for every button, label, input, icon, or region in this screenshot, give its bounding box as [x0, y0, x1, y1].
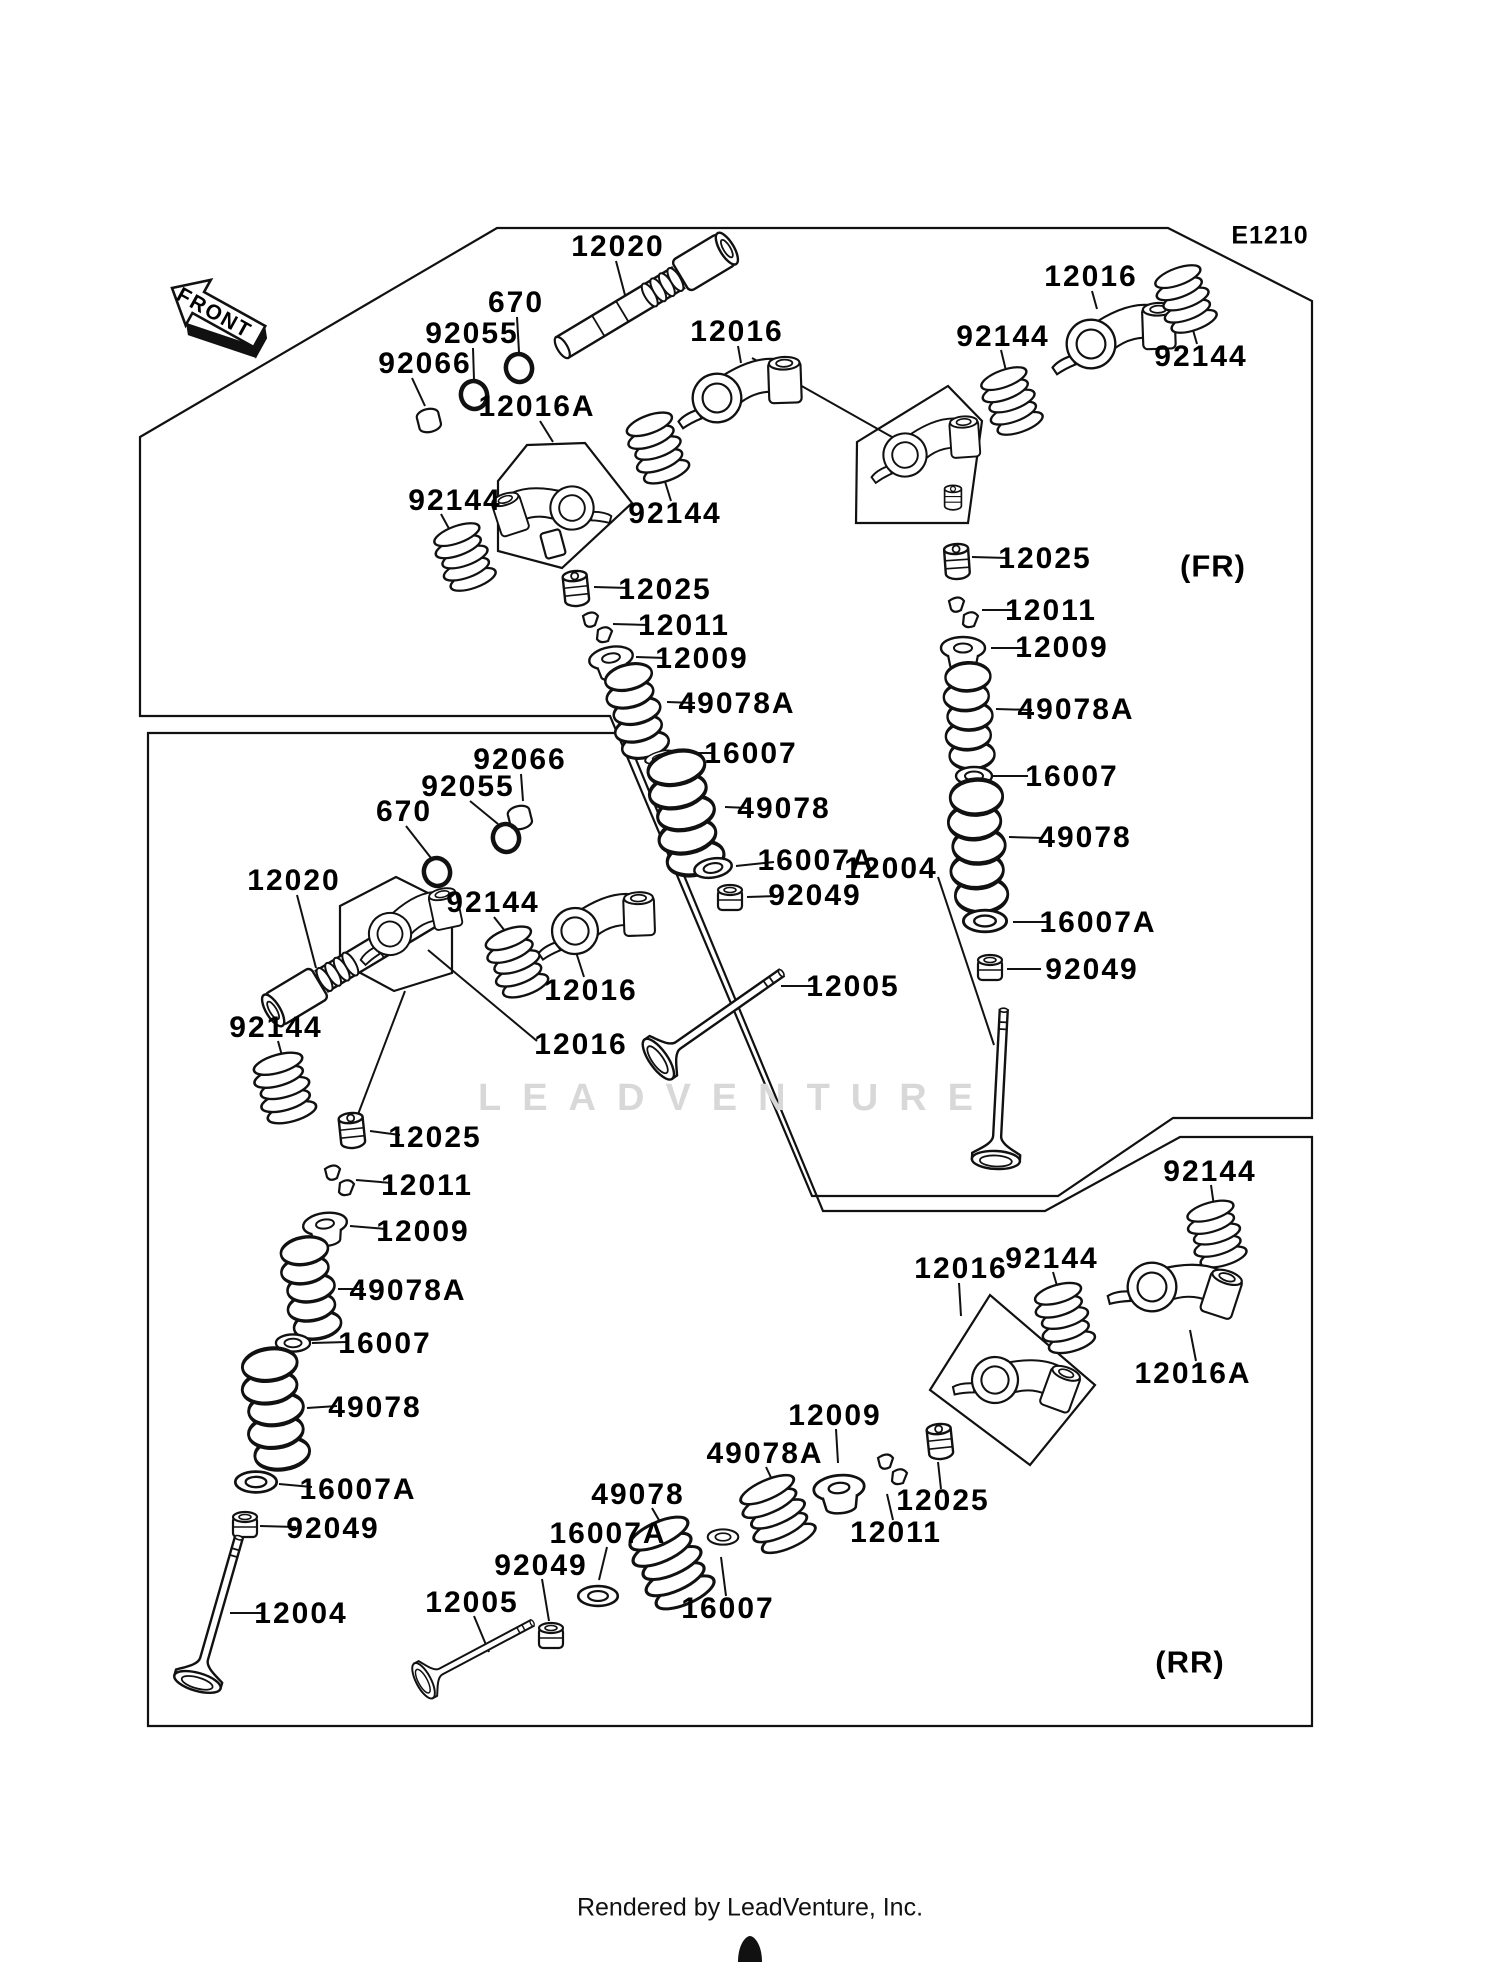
part-label[interactable]: 92144 [1005, 1244, 1098, 1274]
parts-diagram-page: FRONT LEADVENTURE E1210 (FR) (RR) 12020 … [0, 0, 1500, 1962]
part-label[interactable]: 12020 [247, 866, 340, 896]
parts-diagram-canvas: FRONT [0, 0, 1500, 1962]
part-label[interactable]: 92144 [1154, 342, 1247, 372]
part-label[interactable]: 16007A [299, 1475, 416, 1505]
part-label[interactable]: 12011 [850, 1518, 942, 1548]
part-label[interactable]: 16007A [1039, 908, 1156, 938]
part-label[interactable]: 12016 [1044, 262, 1137, 292]
part-label[interactable]: 12011 [381, 1171, 473, 1201]
front-arrow: FRONT [156, 265, 278, 368]
part-label[interactable]: 12011 [638, 611, 730, 641]
part-label[interactable]: 49078 [1038, 823, 1131, 853]
part-label[interactable]: 12004 [254, 1599, 347, 1629]
part-label[interactable]: 12016 [534, 1030, 627, 1060]
part-label[interactable]: 16007 [704, 739, 797, 769]
part-label[interactable]: 12005 [425, 1588, 518, 1618]
part-label[interactable]: 16007 [681, 1594, 774, 1624]
diagram-code: E1210 [1231, 224, 1308, 249]
part-label[interactable]: 49078 [737, 794, 830, 824]
part-label[interactable]: 92144 [1163, 1157, 1256, 1187]
part-label[interactable]: 12025 [388, 1123, 481, 1153]
part-label[interactable]: 92144 [956, 322, 1049, 352]
part-label[interactable]: 16007A [549, 1519, 666, 1549]
part-label[interactable]: 12016A [478, 392, 595, 422]
part-label[interactable]: 670 [488, 288, 544, 318]
part-label[interactable]: 16007 [338, 1329, 431, 1359]
part-label[interactable]: 49078 [328, 1393, 421, 1423]
part-label[interactable]: 49078A [678, 689, 795, 719]
part-label[interactable]: 92144 [446, 888, 539, 918]
part-label[interactable]: 92049 [494, 1551, 587, 1581]
part-label[interactable]: 12025 [998, 544, 1091, 574]
render-credit: Rendered by LeadVenture, Inc. [577, 1896, 923, 1921]
part-label[interactable]: 670 [376, 797, 432, 827]
part-label[interactable]: 12016 [690, 317, 783, 347]
rr-section-parts [408, 1196, 1249, 1701]
part-label[interactable]: 12009 [788, 1401, 881, 1431]
part-label[interactable]: 92066 [378, 349, 471, 379]
part-label[interactable]: 49078A [1017, 695, 1134, 725]
leadventure-logo-fragment [738, 1936, 762, 1962]
part-label[interactable]: 12016 [544, 976, 637, 1006]
part-label[interactable]: 12025 [896, 1486, 989, 1516]
part-label[interactable]: 12016 [914, 1254, 1007, 1284]
part-label[interactable]: 16007A [757, 846, 874, 876]
part-label[interactable]: 12020 [571, 232, 664, 262]
part-label[interactable]: 16007 [1025, 762, 1118, 792]
part-label[interactable]: 12009 [376, 1217, 469, 1247]
part-label[interactable]: 12016A [1134, 1359, 1251, 1389]
part-label[interactable]: 92049 [1045, 955, 1138, 985]
watermark: LEADVENTURE [478, 1079, 994, 1117]
part-label[interactable]: 92055 [421, 772, 514, 802]
part-label[interactable]: 12009 [1015, 633, 1108, 663]
part-label[interactable]: 12011 [1005, 596, 1097, 626]
part-label[interactable]: 49078A [349, 1276, 466, 1306]
part-label[interactable]: 12005 [806, 972, 899, 1002]
fr-marker: (FR) [1180, 551, 1246, 582]
rr-marker: (RR) [1155, 1647, 1224, 1678]
part-label[interactable]: 49078A [706, 1439, 823, 1469]
part-label[interactable]: 92144 [628, 499, 721, 529]
part-label[interactable]: 92144 [408, 486, 501, 516]
part-label[interactable]: 12009 [655, 644, 748, 674]
part-label[interactable]: 92049 [768, 881, 861, 911]
part-label[interactable]: 49078 [591, 1480, 684, 1510]
part-label[interactable]: 12025 [618, 575, 711, 605]
part-label[interactable]: 92049 [286, 1514, 379, 1544]
part-label[interactable]: 92055 [425, 319, 518, 349]
part-label[interactable]: 92144 [229, 1013, 322, 1043]
